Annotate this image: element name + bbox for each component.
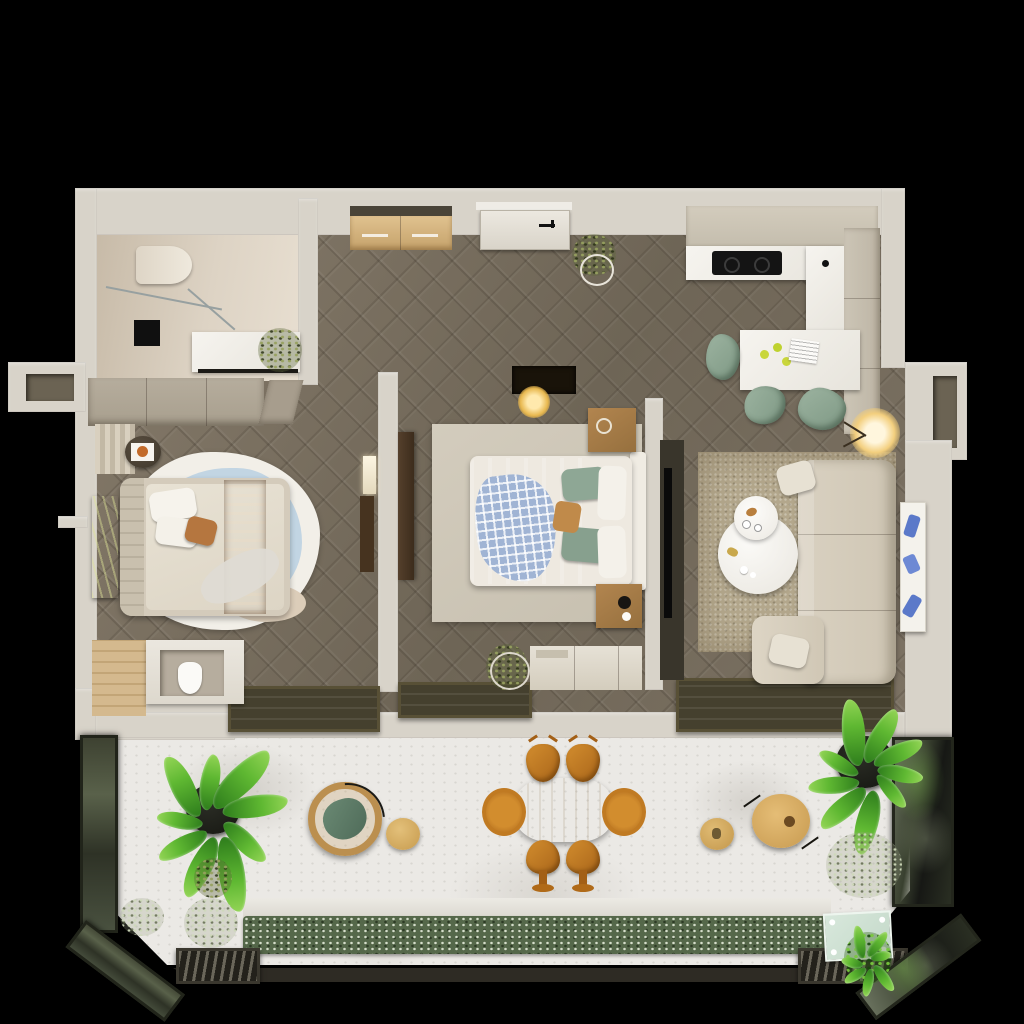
exterior-wall-right-upper bbox=[881, 188, 905, 368]
wardrobe-top-tray bbox=[536, 650, 568, 658]
tv-screen bbox=[664, 468, 672, 618]
lime-1 bbox=[760, 350, 769, 359]
outdoor-chair-bottom-2 bbox=[566, 840, 600, 874]
hanging-rattan-chair bbox=[308, 782, 382, 856]
pale-shrub-1 bbox=[120, 898, 164, 936]
cabinet-seam bbox=[844, 298, 880, 299]
entrance-door bbox=[480, 210, 570, 250]
olive-fern-left bbox=[194, 858, 232, 898]
floor-lamp-glow bbox=[850, 408, 900, 458]
cup-1 bbox=[742, 520, 751, 529]
bedroom1-door-leaf bbox=[360, 496, 374, 572]
glass-railing-right bbox=[892, 737, 954, 907]
pale-shrub-2 bbox=[184, 898, 238, 948]
candle-1 bbox=[740, 566, 748, 574]
table-lamp bbox=[618, 596, 631, 609]
bed2-headboard bbox=[630, 452, 646, 590]
glass-fitting bbox=[879, 917, 885, 923]
bed2-mattress bbox=[470, 456, 632, 586]
door-threshold bbox=[476, 202, 572, 210]
nightstand-cup bbox=[622, 612, 631, 621]
cooktop bbox=[712, 251, 782, 275]
glass-fitting bbox=[831, 949, 837, 955]
outdoor-chair-right bbox=[602, 788, 646, 836]
glass-railing-left bbox=[80, 735, 118, 933]
caramel-pillow bbox=[552, 500, 582, 534]
wardrobe-seam bbox=[618, 646, 619, 690]
floor-plan-render bbox=[0, 0, 1024, 1024]
console-seam bbox=[400, 216, 401, 250]
sink-faucet bbox=[822, 260, 829, 267]
glass-fitting bbox=[829, 919, 835, 925]
round-wood-lounge-chair bbox=[752, 794, 810, 848]
hedge-planter bbox=[243, 916, 827, 954]
gold-side-table-left bbox=[386, 818, 420, 850]
magazine bbox=[789, 338, 820, 364]
bedroom1-wardrobe bbox=[88, 378, 264, 426]
nightstand-bottom bbox=[596, 584, 642, 628]
bed1-frame bbox=[120, 478, 290, 616]
console-handle-2 bbox=[412, 234, 438, 237]
wc-block bbox=[146, 640, 244, 704]
wardrobe-seam bbox=[574, 646, 575, 690]
white-pillow-1 bbox=[597, 466, 627, 521]
bedroom1-side-table bbox=[125, 436, 161, 468]
bedroom2-low-wardrobe bbox=[530, 646, 642, 690]
bed1-headboard bbox=[120, 478, 144, 616]
wardrobe-seam bbox=[206, 378, 207, 426]
entry-plant-stand bbox=[580, 254, 614, 286]
lit-wall-niche bbox=[363, 456, 376, 494]
left-niche-recess bbox=[26, 374, 74, 401]
table-decor bbox=[712, 828, 721, 839]
leaning-artwork bbox=[900, 502, 926, 632]
outdoor-chair-left bbox=[482, 788, 526, 836]
island-dining-table bbox=[740, 330, 860, 390]
shower-mat bbox=[134, 320, 160, 346]
pale-fern-right bbox=[826, 832, 902, 898]
burner-2 bbox=[754, 257, 770, 273]
drain-grate-left bbox=[176, 948, 260, 984]
chair-base bbox=[532, 884, 554, 892]
art-card-pumpkin bbox=[137, 446, 148, 457]
toilet bbox=[136, 246, 192, 284]
console-handle-1 bbox=[362, 234, 388, 237]
nightstand-top bbox=[588, 408, 636, 452]
outdoor-chair-bottom-1 bbox=[526, 840, 560, 874]
burner-1 bbox=[724, 257, 740, 273]
lime-2 bbox=[773, 343, 782, 352]
bathroom-right-wall bbox=[298, 198, 318, 385]
cup-2 bbox=[754, 524, 762, 532]
wood-deck-strip bbox=[92, 640, 146, 716]
wardrobe-seam bbox=[146, 378, 147, 426]
bedroom1-sliding-window bbox=[228, 686, 380, 732]
bedroom-divider-wall bbox=[378, 372, 398, 692]
chair-base bbox=[572, 884, 594, 892]
outdoor-dining-table bbox=[515, 778, 613, 842]
white-pillow-2 bbox=[597, 526, 627, 579]
artwork-mark-2 bbox=[902, 553, 921, 575]
nightstand-decor bbox=[596, 418, 612, 434]
candle-2 bbox=[750, 572, 756, 578]
croissant bbox=[745, 506, 758, 517]
plant-wire-stand bbox=[490, 652, 530, 690]
bedroom2-door-leaf bbox=[398, 432, 414, 580]
left-wall-fin bbox=[58, 516, 88, 528]
lounge-chair-hole bbox=[784, 816, 795, 827]
vanity-plant bbox=[258, 328, 302, 372]
artwork-mark-3 bbox=[901, 593, 922, 618]
door-handle-stem bbox=[551, 220, 554, 228]
right-niche-recess bbox=[933, 376, 957, 448]
coffee-table-small bbox=[734, 496, 778, 540]
gold-side-table-right bbox=[700, 818, 734, 850]
wc-toilet bbox=[178, 662, 202, 694]
green-wall-art bbox=[92, 496, 118, 598]
artwork-mark-1 bbox=[903, 514, 921, 539]
console-sideboard bbox=[350, 216, 452, 250]
pendant-lamp bbox=[518, 386, 550, 418]
